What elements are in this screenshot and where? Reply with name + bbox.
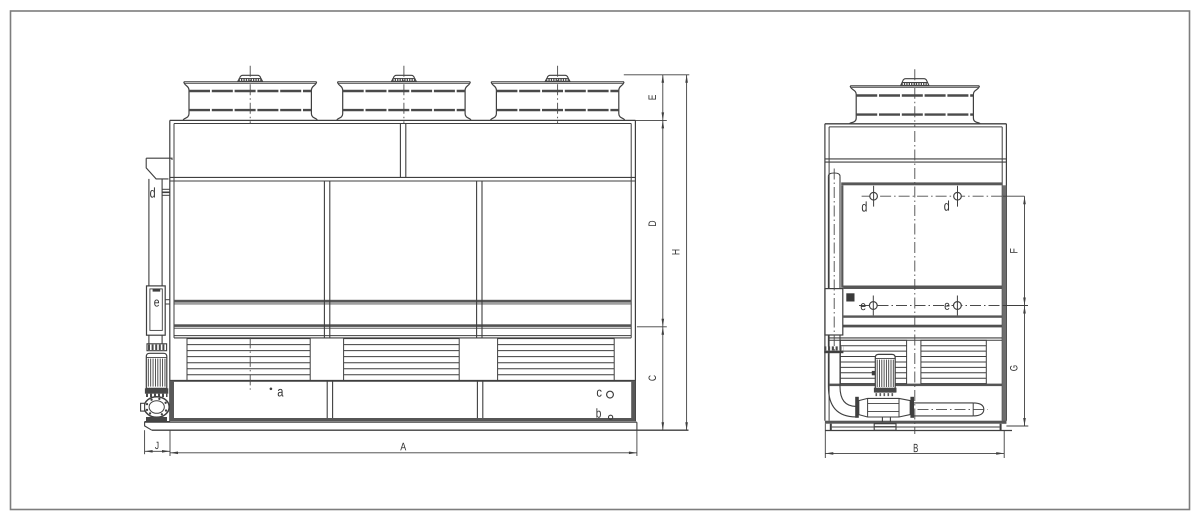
svg-text:B: B (913, 441, 918, 455)
svg-text:e: e (860, 298, 866, 313)
svg-text:D: D (647, 220, 659, 226)
svg-text:E: E (647, 95, 659, 101)
svg-text:A: A (400, 441, 407, 453)
svg-text:d: d (861, 198, 867, 214)
svg-text:d: d (944, 198, 950, 214)
svg-text:a: a (277, 383, 283, 399)
svg-text:F: F (1009, 248, 1021, 254)
svg-text:e: e (944, 298, 950, 313)
svg-text:H: H (671, 249, 683, 255)
svg-text:c: c (596, 385, 602, 400)
svg-text:b: b (596, 406, 602, 421)
svg-text:d: d (150, 184, 156, 200)
svg-text:e: e (154, 294, 160, 309)
svg-text:C: C (647, 375, 659, 381)
svg-text:G: G (1009, 365, 1021, 371)
svg-text:J: J (155, 440, 159, 452)
